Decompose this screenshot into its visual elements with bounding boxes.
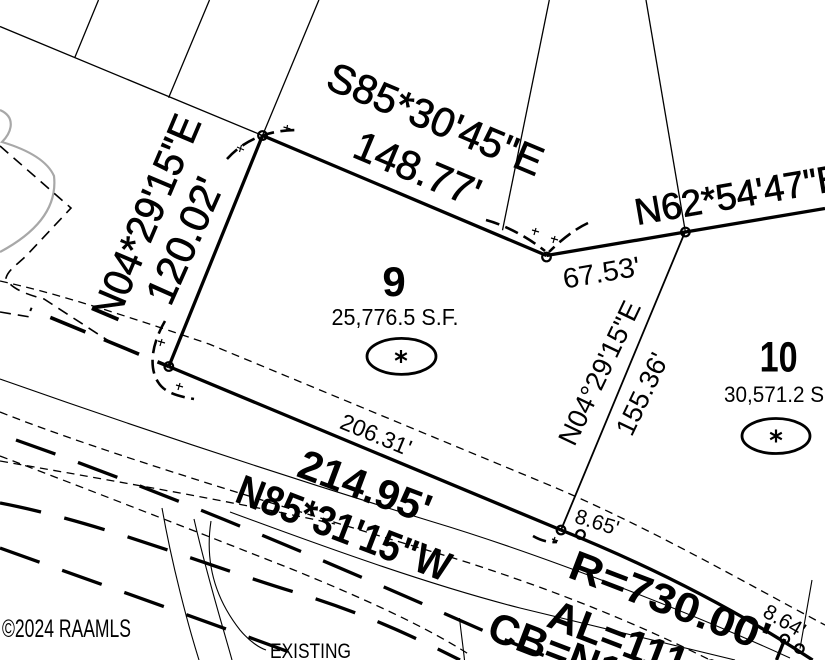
svg-text:30,571.2 S: 30,571.2 S bbox=[724, 382, 824, 407]
svg-text:25,776.5 S.F.: 25,776.5 S.F. bbox=[332, 304, 459, 330]
svg-text:9: 9 bbox=[382, 258, 405, 305]
svg-text:©2024 RAAMLS: ©2024 RAAMLS bbox=[2, 615, 131, 643]
svg-text:10: 10 bbox=[760, 334, 798, 382]
svg-text:EXISTING: EXISTING bbox=[270, 640, 351, 660]
